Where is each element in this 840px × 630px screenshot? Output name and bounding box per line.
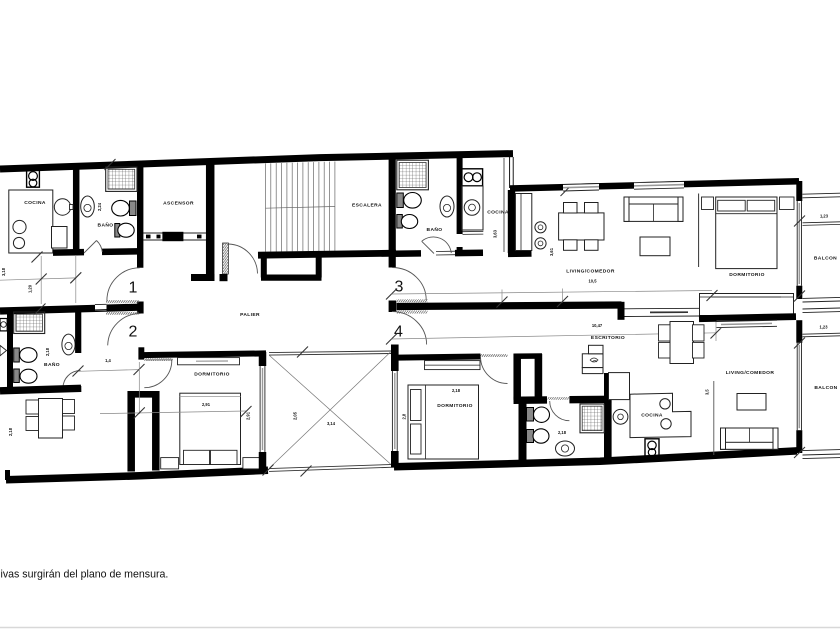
svg-text:2,91: 2,91 xyxy=(246,411,251,420)
svg-text:3,5: 3,5 xyxy=(705,389,710,395)
svg-text:ESCRITORIO: ESCRITORIO xyxy=(591,335,625,341)
svg-text:ASCENSOR: ASCENSOR xyxy=(163,201,194,207)
svg-text:1,20: 1,20 xyxy=(28,284,33,293)
svg-text:2,18: 2,18 xyxy=(558,430,567,435)
svg-text:2: 2 xyxy=(129,324,138,341)
svg-text:10,47: 10,47 xyxy=(592,323,603,328)
svg-text:COCINA: COCINA xyxy=(641,413,663,419)
svg-text:ivas surgirán del plano de men: ivas surgirán del plano de mensura. xyxy=(1,569,169,581)
svg-text:COCINA: COCINA xyxy=(487,210,509,216)
svg-text:4: 4 xyxy=(394,324,403,341)
svg-text:BAÑO: BAÑO xyxy=(44,361,60,368)
svg-text:10,5: 10,5 xyxy=(589,279,598,284)
svg-text:3,61: 3,61 xyxy=(549,247,554,256)
svg-text:LIVING/COMEDOR: LIVING/COMEDOR xyxy=(726,370,775,376)
svg-text:DORMITORIO: DORMITORIO xyxy=(729,272,765,278)
svg-text:BAÑO: BAÑO xyxy=(427,226,443,233)
svg-text:LIVING/COMEDOR: LIVING/COMEDOR xyxy=(566,269,615,275)
svg-text:BALCON: BALCON xyxy=(814,256,837,262)
svg-text:BALCON: BALCON xyxy=(814,385,837,391)
svg-text:DORMITORIO: DORMITORIO xyxy=(437,403,473,409)
svg-text:ESCALERA: ESCALERA xyxy=(352,203,382,209)
svg-text:2,18: 2,18 xyxy=(8,427,13,436)
svg-text:COCINA: COCINA xyxy=(24,200,46,206)
svg-text:PALIER: PALIER xyxy=(240,312,260,318)
svg-text:BAÑO: BAÑO xyxy=(98,222,114,229)
svg-text:1,23: 1,23 xyxy=(820,214,829,219)
svg-text:DORMITORIO: DORMITORIO xyxy=(194,372,230,378)
svg-text:2,24: 2,24 xyxy=(97,202,102,211)
svg-text:2,91: 2,91 xyxy=(202,402,211,407)
svg-text:1,4: 1,4 xyxy=(105,358,111,363)
svg-text:3,14: 3,14 xyxy=(327,421,336,426)
svg-text:2,05: 2,05 xyxy=(293,411,298,420)
svg-text:3: 3 xyxy=(395,279,404,296)
svg-text:2,18: 2,18 xyxy=(452,388,461,393)
svg-text:1,23: 1,23 xyxy=(820,325,829,330)
svg-text:2,8: 2,8 xyxy=(402,413,407,419)
svg-text:3,63: 3,63 xyxy=(493,229,498,238)
svg-text:1: 1 xyxy=(129,280,138,297)
svg-text:3,18: 3,18 xyxy=(1,267,6,276)
svg-text:2,18: 2,18 xyxy=(45,347,50,356)
